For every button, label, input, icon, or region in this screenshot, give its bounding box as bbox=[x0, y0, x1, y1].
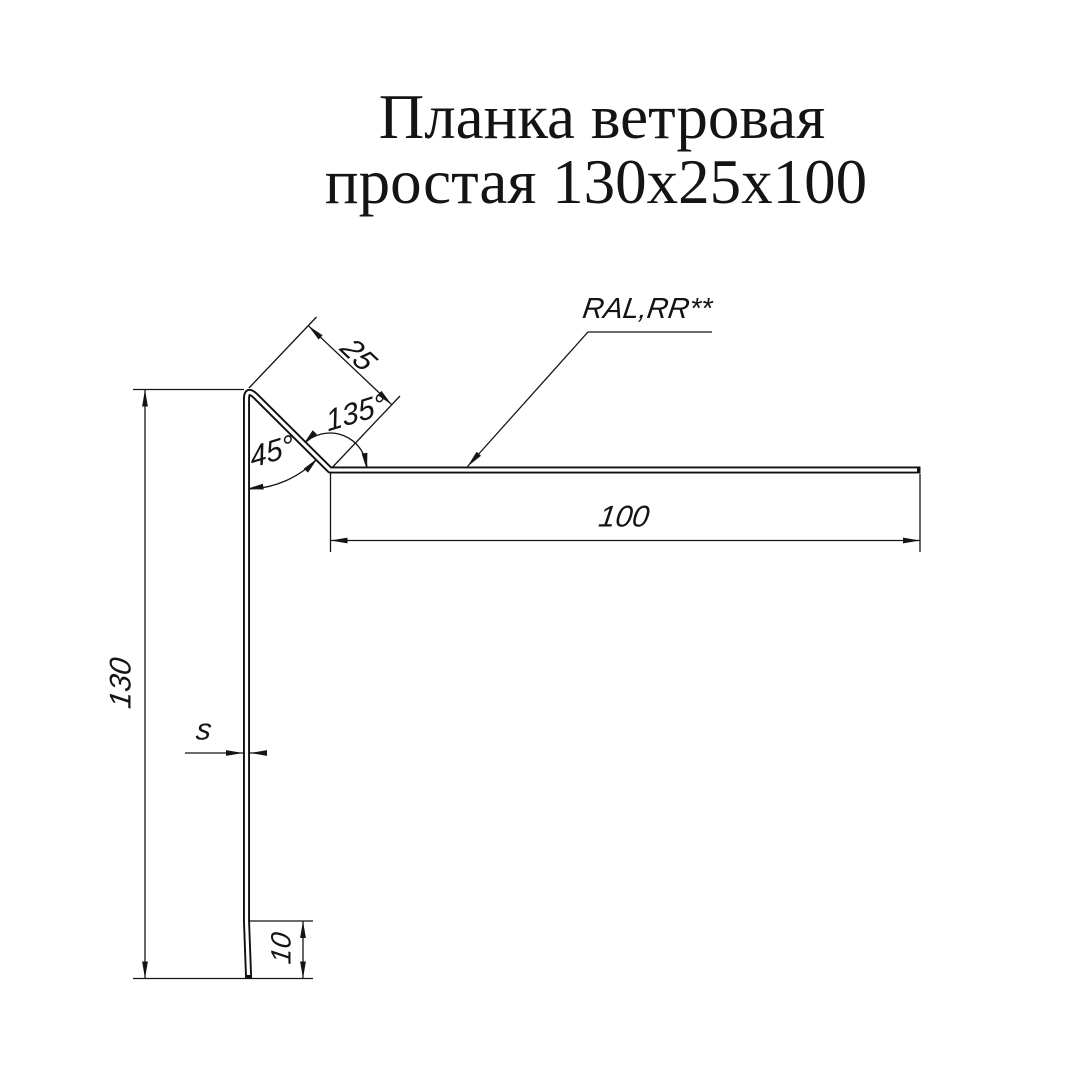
leader-arrowhead bbox=[468, 452, 482, 467]
dimension-100-label: 100 bbox=[597, 501, 652, 534]
dimension-100: 100 bbox=[331, 471, 921, 552]
dimension-10: 10 bbox=[250, 921, 313, 979]
angle-45: 45° bbox=[247, 429, 318, 490]
drawing-title: Планка ветровая простая 130x25x100 bbox=[325, 82, 867, 217]
angle-45-label: 45° bbox=[248, 429, 297, 475]
angle-135-label: 135° bbox=[324, 388, 388, 439]
profile-sheet-outer bbox=[247, 392, 918, 975]
profile-sheet-core bbox=[247, 392, 918, 975]
dimension-thickness: s bbox=[185, 714, 267, 756]
technical-drawing-canvas: Планка ветровая простая 130x25x100 130 1… bbox=[0, 0, 1088, 1082]
arrowhead-left bbox=[226, 750, 243, 756]
dimension-130-label: 130 bbox=[105, 655, 138, 710]
arrowhead-right bbox=[250, 750, 267, 756]
arrowhead-right bbox=[903, 538, 920, 544]
arrowhead-down bbox=[142, 962, 148, 979]
arrowhead-upper bbox=[308, 326, 322, 340]
title-line-2: простая 130x25x100 bbox=[325, 147, 867, 217]
profile-outline bbox=[247, 392, 918, 975]
leader-line bbox=[468, 332, 713, 467]
arrowhead-up bbox=[300, 921, 306, 938]
arrowhead-up bbox=[142, 390, 148, 407]
extension-line-upper bbox=[249, 317, 317, 388]
dimension-25-label: 25 bbox=[332, 333, 383, 377]
coating-leader: RAL,RR** bbox=[468, 293, 716, 466]
dimension-10-label: 10 bbox=[266, 930, 297, 966]
arrowhead-down bbox=[300, 962, 306, 979]
dimension-130: 130 bbox=[105, 390, 313, 979]
coating-label: RAL,RR** bbox=[581, 293, 716, 325]
title-line-1: Планка ветровая bbox=[379, 82, 825, 152]
arrowhead-left bbox=[331, 538, 348, 544]
thickness-label: s bbox=[194, 714, 214, 747]
